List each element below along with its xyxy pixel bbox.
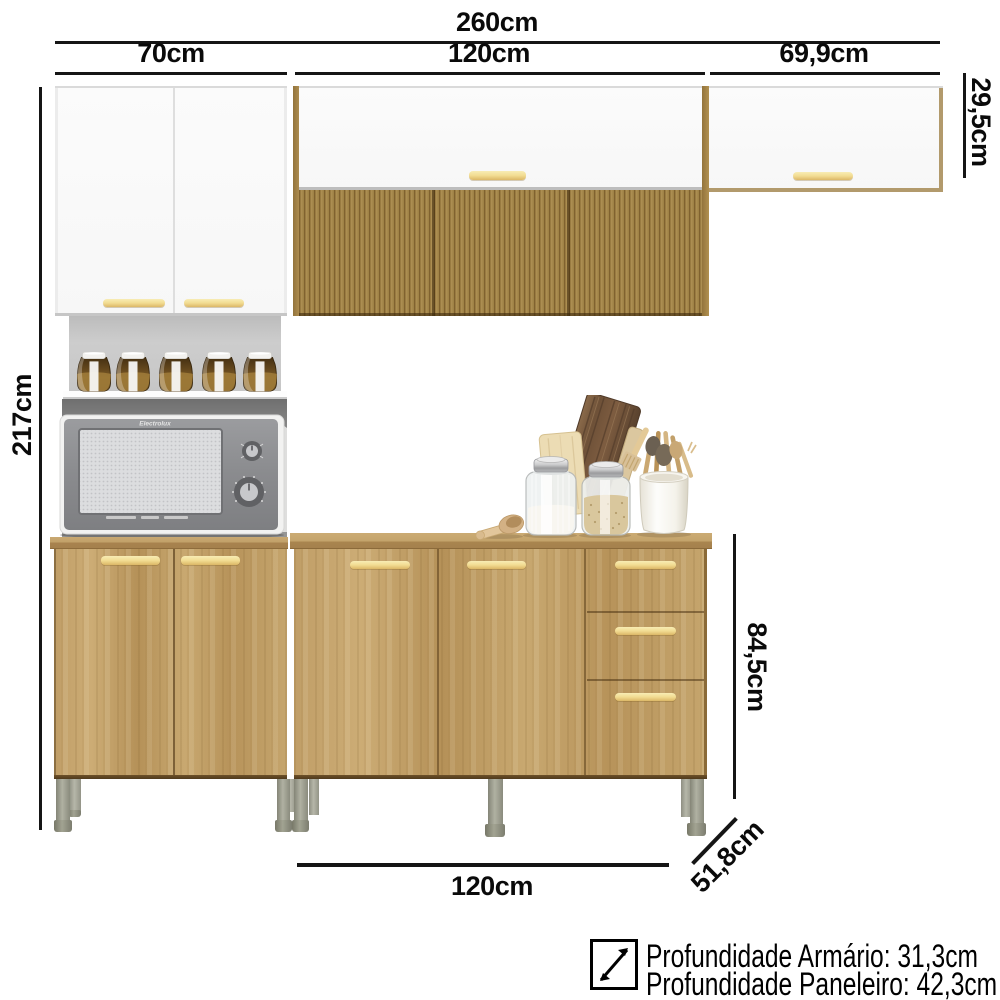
svg-text:217cm: 217cm <box>7 374 37 456</box>
svg-text:Electrolux: Electrolux <box>139 421 171 428</box>
svg-text:29,5cm: 29,5cm <box>966 77 996 166</box>
svg-text:84,5cm: 84,5cm <box>742 622 772 711</box>
